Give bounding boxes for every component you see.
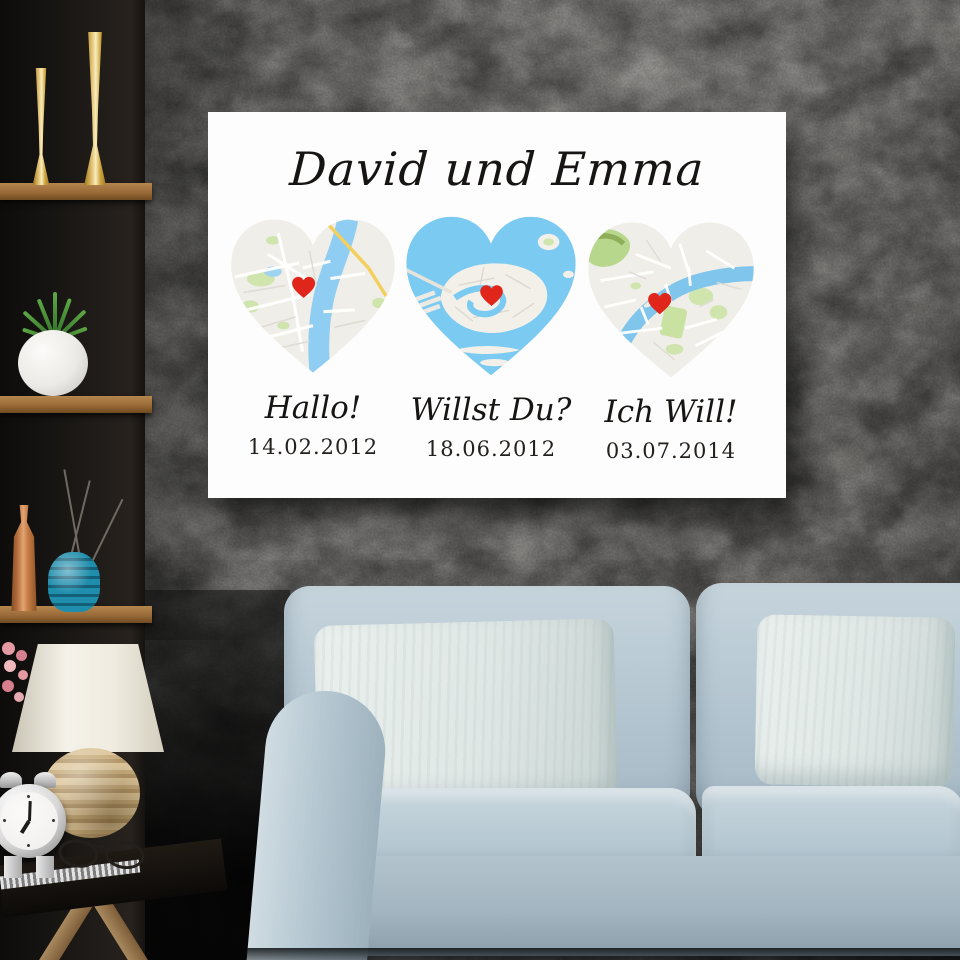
canvas-title: David und Emma <box>207 142 788 196</box>
panel-3: Ich Will! 03.07.2014 <box>578 218 764 463</box>
canvas-print: David und Emma <box>208 112 786 498</box>
teal-vase <box>48 552 100 612</box>
panel-date: 18.06.2012 <box>398 437 584 461</box>
eyeglass-lens <box>103 838 147 872</box>
flower <box>4 660 16 672</box>
clock-face <box>0 792 58 850</box>
plant-pot <box>18 330 88 396</box>
room-photo: David und Emma <box>0 0 960 960</box>
panel-2: Willst Du? 18.06.2012 <box>398 212 584 461</box>
couch-floor-shadow <box>246 948 960 960</box>
hour-hand <box>20 820 31 834</box>
flower <box>18 670 28 680</box>
flower <box>2 642 15 655</box>
flower <box>16 650 27 661</box>
shelf-board-top <box>0 183 152 200</box>
flower <box>2 680 14 692</box>
clock-foot <box>36 856 54 878</box>
panel-date: 03.07.2014 <box>578 439 764 463</box>
pillow-right <box>755 614 956 787</box>
heart-map-lagoon-city <box>401 212 581 380</box>
minute-hand <box>28 801 32 821</box>
panel-date: 14.02.2012 <box>220 435 406 459</box>
eyeglass-lens <box>56 837 100 871</box>
heart-map-river-city <box>226 214 400 378</box>
panel-caption: Willst Du? <box>398 392 584 428</box>
flower <box>14 692 24 702</box>
flowers <box>0 636 44 722</box>
clock-foot <box>4 856 22 878</box>
panel-caption: Hallo! <box>220 390 406 426</box>
heart-map-seine-city <box>583 218 759 382</box>
panel-caption: Ich Will! <box>578 394 764 430</box>
alarm-clock <box>0 772 68 908</box>
shelf-board-middle <box>0 396 152 413</box>
clock-body <box>0 784 66 858</box>
panel-1: Hallo! 14.02.2012 <box>220 214 406 459</box>
